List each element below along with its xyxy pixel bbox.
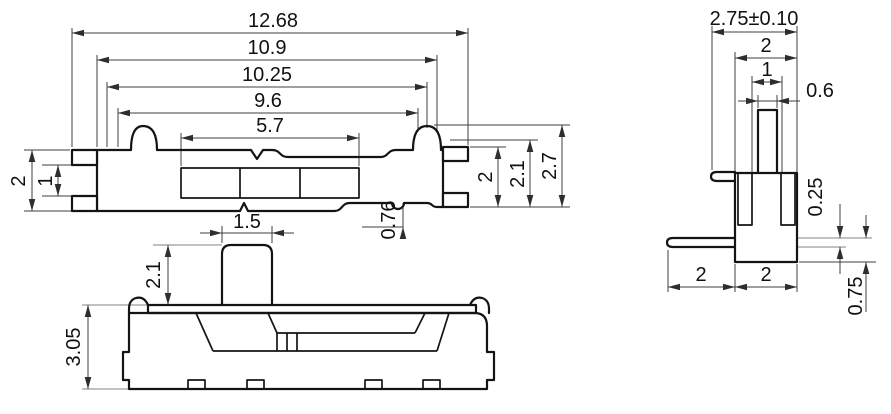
side-view-body <box>735 173 797 262</box>
dim-side-body-width: 2 <box>760 35 771 57</box>
dim-left-terminal-span: 2 <box>8 175 30 186</box>
front-view: 1.5 2.1 3.05 <box>63 211 494 389</box>
front-view-foot <box>423 380 440 389</box>
dim-length-c: 10.25 <box>242 64 292 86</box>
technical-drawing: 12.68 10.9 10.25 9.6 5.7 2 1 2 2.1 2.7 0… <box>0 0 891 414</box>
dim-right-terminal-span: 2 <box>475 171 497 182</box>
top-view-left-terminal-lower <box>72 196 97 211</box>
dim-side-body-depth: 2 <box>760 264 771 286</box>
front-view-inner-detail <box>196 313 449 351</box>
dim-knob-height: 2.1 <box>143 261 165 289</box>
dim-notch-offset: 0.76 <box>378 201 400 240</box>
side-view-pin <box>667 238 735 247</box>
front-view-mounting-plate <box>148 305 476 313</box>
front-view-knob <box>222 245 272 305</box>
front-view-foot <box>365 380 382 389</box>
top-view-dimension-lines <box>29 30 566 239</box>
dim-length-d: 9.6 <box>254 90 282 112</box>
dim-side-knob-width: 0.6 <box>806 80 834 102</box>
side-view-tab <box>711 172 735 181</box>
top-view-left-terminal-upper <box>72 150 97 165</box>
dim-body-width: 2.1 <box>507 160 529 188</box>
dim-length-b: 10.9 <box>248 37 287 59</box>
dim-pin-thickness: 0.25 <box>805 178 827 217</box>
dim-left-terminal-gap: 1 <box>35 175 57 186</box>
front-view-foot <box>247 380 264 389</box>
dim-pin-drop: 0.75 <box>845 277 867 316</box>
side-view-knob <box>758 110 777 173</box>
dim-body-height: 3.05 <box>63 328 85 367</box>
dim-side-inner-width: 1 <box>761 59 772 81</box>
dim-overall-length: 12.68 <box>248 10 298 32</box>
top-view-right-terminal-lower <box>443 193 468 207</box>
dim-knob-width: 1.5 <box>233 211 261 233</box>
dim-overall-width: 2.7 <box>539 152 561 180</box>
dim-pin-length: 2 <box>695 264 706 286</box>
top-view: 12.68 10.9 10.25 9.6 5.7 2 1 2 2.1 2.7 0… <box>8 10 570 239</box>
dim-side-overall-width: 2.75±0.10 <box>710 8 799 30</box>
side-view: 2.75±0.10 2 1 0.6 0.25 0.75 2 2 <box>667 8 876 315</box>
top-view-right-terminal-upper <box>443 147 468 161</box>
top-view-slider-slot <box>181 168 359 198</box>
drawing-canvas: 12.68 10.9 10.25 9.6 5.7 2 1 2 2.1 2.7 0… <box>0 0 891 414</box>
dim-slot-length: 5.7 <box>256 115 284 137</box>
front-view-foot <box>188 380 205 389</box>
